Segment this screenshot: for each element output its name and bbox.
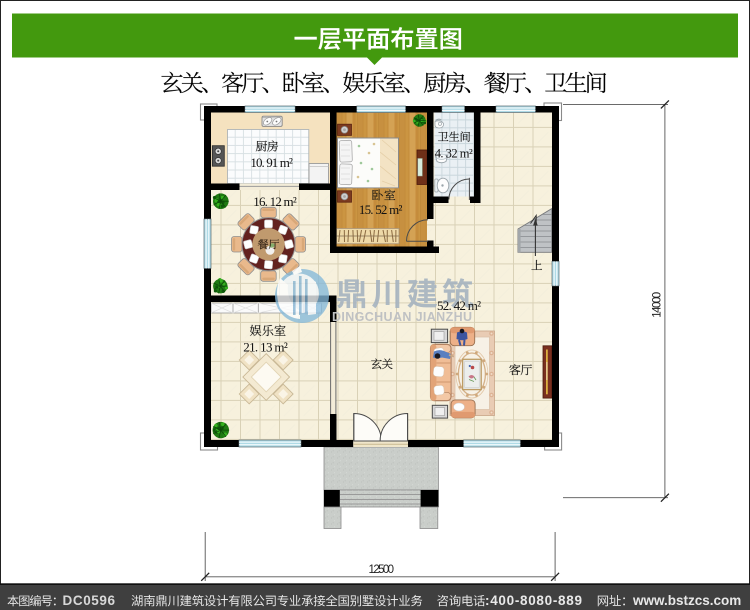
svg-text:10. 91 m²: 10. 91 m² (250, 155, 293, 170)
svg-text:14000: 14000 (652, 292, 664, 318)
svg-text:DC0596: DC0596 (63, 593, 116, 608)
svg-text:16. 12 m²: 16. 12 m² (253, 194, 297, 209)
svg-text:4. 32 m²: 4. 32 m² (435, 146, 473, 160)
svg-text:12500: 12500 (369, 564, 395, 576)
svg-text::400-8080-889: :400-8080-889 (485, 593, 583, 608)
svg-text:52. 42 m²: 52. 42 m² (437, 298, 481, 313)
svg-text:15. 52 m²: 15. 52 m² (359, 202, 403, 217)
svg-text:21. 13 m²: 21. 13 m² (243, 340, 288, 355)
svg-text:www.bstzcs.com: www.bstzcs.com (632, 593, 741, 608)
